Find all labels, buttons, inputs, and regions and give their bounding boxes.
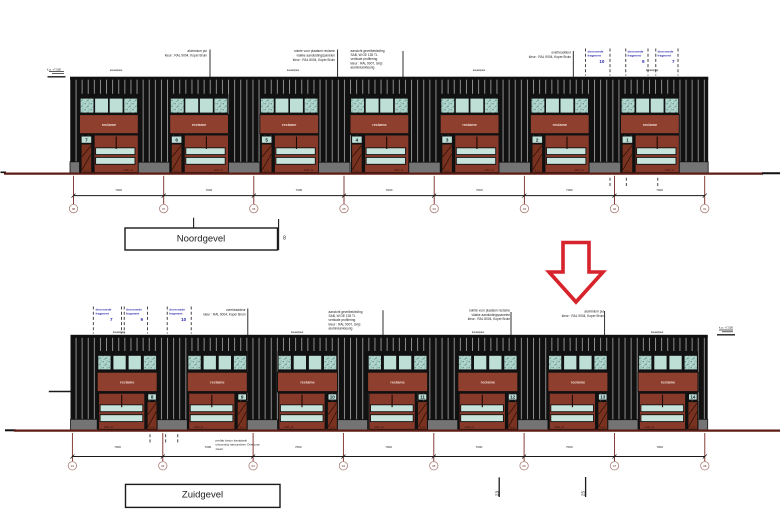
svg-text:GMK_01: GMK_01 [555,426,565,429]
svg-text:A_01: A_01 [445,169,451,172]
svg-text:aluminiumkleurig: aluminiumkleurig [351,65,375,69]
svg-text:reclame: reclame [120,381,134,385]
svg-text:GMK_01: GMK_01 [194,426,204,429]
svg-text:zwart: zwart [216,447,224,451]
svg-text:A_01: A_01 [264,169,270,172]
svg-text:kanaalplaat: kanaalplaat [287,69,300,72]
svg-text:k.a. +7.500: k.a. +7.500 [719,326,733,330]
svg-text:kanaalplaat: kanaalplaat [646,69,659,72]
svg-text:k.a. +7.500: k.a. +7.500 [47,67,61,71]
svg-text:GMK_01: GMK_01 [104,426,114,429]
svg-text:10: 10 [599,59,605,64]
svg-text:02: 02 [161,464,165,468]
svg-text:kleur : RAL 9004, Koper Bruin: kleur : RAL 9004, Koper Bruin [203,312,245,316]
svg-text:aluminiumkleurig: aluminiumkleurig [329,326,353,330]
svg-text:GMP_01: GMP_01 [574,169,584,172]
svg-text:7: 7 [85,138,88,143]
svg-text:10: 10 [330,395,336,400]
svg-text:kleur : RAL 8004, Koper Bruin: kleur : RAL 8004, Koper Bruin [293,58,335,62]
svg-text:04: 04 [342,464,346,468]
svg-text:reclame: reclame [210,381,224,385]
svg-text:7000: 7000 [566,445,573,449]
svg-text:GMP_01: GMP_01 [484,169,494,172]
svg-text:02: 02 [613,207,617,211]
svg-text:13: 13 [600,395,606,400]
svg-text:03: 03 [523,207,527,211]
svg-text:A_01: A_01 [354,169,360,172]
svg-text:reclame: reclame [462,123,476,127]
svg-text:reclame: reclame [282,123,296,127]
svg-text:7000: 7000 [205,188,212,192]
svg-text:reclame: reclame [102,123,116,127]
svg-text:9: 9 [241,395,244,400]
svg-text:1: 1 [626,138,629,143]
svg-text:7000: 7000 [386,188,393,192]
svg-text:kanaalplaat: kanaalplaat [472,331,485,334]
svg-text:A_01: A_01 [150,426,156,429]
svg-text:08: 08 [72,207,76,211]
svg-text:GMP_01: GMP_01 [124,169,134,172]
svg-text:reclame: reclame [192,123,206,127]
svg-text:07: 07 [613,464,617,468]
svg-text:06: 06 [522,464,526,468]
svg-text:3: 3 [446,138,449,143]
svg-text:03: 03 [251,464,255,468]
svg-text:reclame: reclame [390,381,404,385]
svg-text:12: 12 [510,395,516,400]
svg-text:GMP_01: GMP_01 [665,169,675,172]
svg-text:GMK_01: GMK_01 [645,426,655,429]
svg-text:8: 8 [283,236,286,242]
svg-text:kanaalplaat: kanaalplaat [473,69,486,72]
svg-text:7000: 7000 [656,188,663,192]
svg-text:14: 14 [690,395,696,400]
svg-text:fragment: fragment [169,312,182,316]
svg-text:04: 04 [433,207,437,211]
svg-text:7000: 7000 [296,188,303,192]
svg-text:7000: 7000 [656,445,663,449]
svg-text:fragment: fragment [658,54,671,58]
svg-text:GMK_01: GMK_01 [284,426,294,429]
svg-text:fragment: fragment [126,312,139,316]
svg-text:6: 6 [175,138,178,143]
svg-text:GMP_01: GMP_01 [304,169,314,172]
svg-text:4: 4 [356,138,359,143]
svg-text:8: 8 [151,395,154,400]
svg-text:7: 7 [672,59,675,64]
svg-text:reclame: reclame [661,381,675,385]
svg-text:reclame: reclame [643,123,657,127]
svg-text:fragment: fragment [588,54,601,58]
svg-text:07: 07 [162,207,166,211]
svg-text:reclame: reclame [481,381,495,385]
svg-text:01: 01 [71,464,75,468]
svg-text:08: 08 [703,464,707,468]
svg-text:kanaalplaat: kanaalplaat [113,331,126,334]
svg-text:06: 06 [252,207,256,211]
svg-text:reclame: reclame [553,123,567,127]
svg-text:A_01: A_01 [510,426,516,429]
svg-text:7000: 7000 [115,188,122,192]
svg-text:Zuidgevel: Zuidgevel [182,490,223,501]
svg-text:Noordgevel: Noordgevel [177,234,226,245]
svg-text:9: 9 [642,59,645,64]
svg-text:A_01: A_01 [240,426,246,429]
svg-text:kanaalplaat: kanaalplaat [291,331,304,334]
svg-text:7000: 7000 [476,188,483,192]
svg-text:A_01: A_01 [690,426,696,429]
svg-text:7000: 7000 [114,445,121,449]
svg-text:fragment: fragment [96,312,109,316]
svg-text:kleur : RAL 9004, Koper Bruin: kleur : RAL 9004, Koper Bruin [562,314,604,318]
svg-text:7000: 7000 [295,445,302,449]
svg-text:5: 5 [265,138,268,143]
svg-text:05: 05 [432,464,436,468]
svg-text:GMK_01: GMK_01 [374,426,384,429]
svg-text:10: 10 [181,317,187,322]
svg-text:2: 2 [536,138,539,143]
svg-text:7000: 7000 [566,188,573,192]
svg-text:A_01: A_01 [600,426,606,429]
svg-text:9: 9 [140,317,143,322]
svg-text:23: 23 [495,491,500,497]
svg-text:7000: 7000 [385,445,392,449]
svg-text:reclame: reclame [372,123,386,127]
svg-text:kleur : RAL 8004, Koper Bruin: kleur : RAL 8004, Koper Bruin [468,317,510,321]
svg-text:7000: 7000 [205,445,212,449]
svg-text:GMP_01: GMP_01 [214,169,224,172]
svg-text:reclame: reclame [571,381,585,385]
svg-text:A_01: A_01 [420,426,426,429]
svg-text:kanaalplaat: kanaalplaat [651,331,664,334]
svg-text:kleur : RAL 9004, Koper Bruin: kleur : RAL 9004, Koper Bruin [165,54,207,58]
svg-text:01: 01 [703,207,707,211]
svg-text:GMK_01: GMK_01 [464,426,474,429]
svg-text:kleur : RAL 9004, Koper Bruin: kleur : RAL 9004, Koper Bruin [529,55,571,59]
svg-text:A_01: A_01 [84,169,90,172]
svg-text:A_01: A_01 [174,169,180,172]
svg-text:11: 11 [420,395,425,400]
svg-text:7: 7 [110,317,113,322]
svg-text:reclame: reclame [300,381,314,385]
svg-text:GMP_01: GMP_01 [394,169,404,172]
svg-text:05: 05 [342,207,346,211]
svg-text:7000: 7000 [476,445,483,449]
svg-text:A_01: A_01 [535,169,541,172]
svg-text:A_01: A_01 [625,169,631,172]
svg-text:fragment: fragment [628,54,641,58]
svg-text:A_01: A_01 [330,426,336,429]
svg-text:kanaalplaat: kanaalplaat [110,69,123,72]
svg-text:25: 25 [581,491,586,497]
